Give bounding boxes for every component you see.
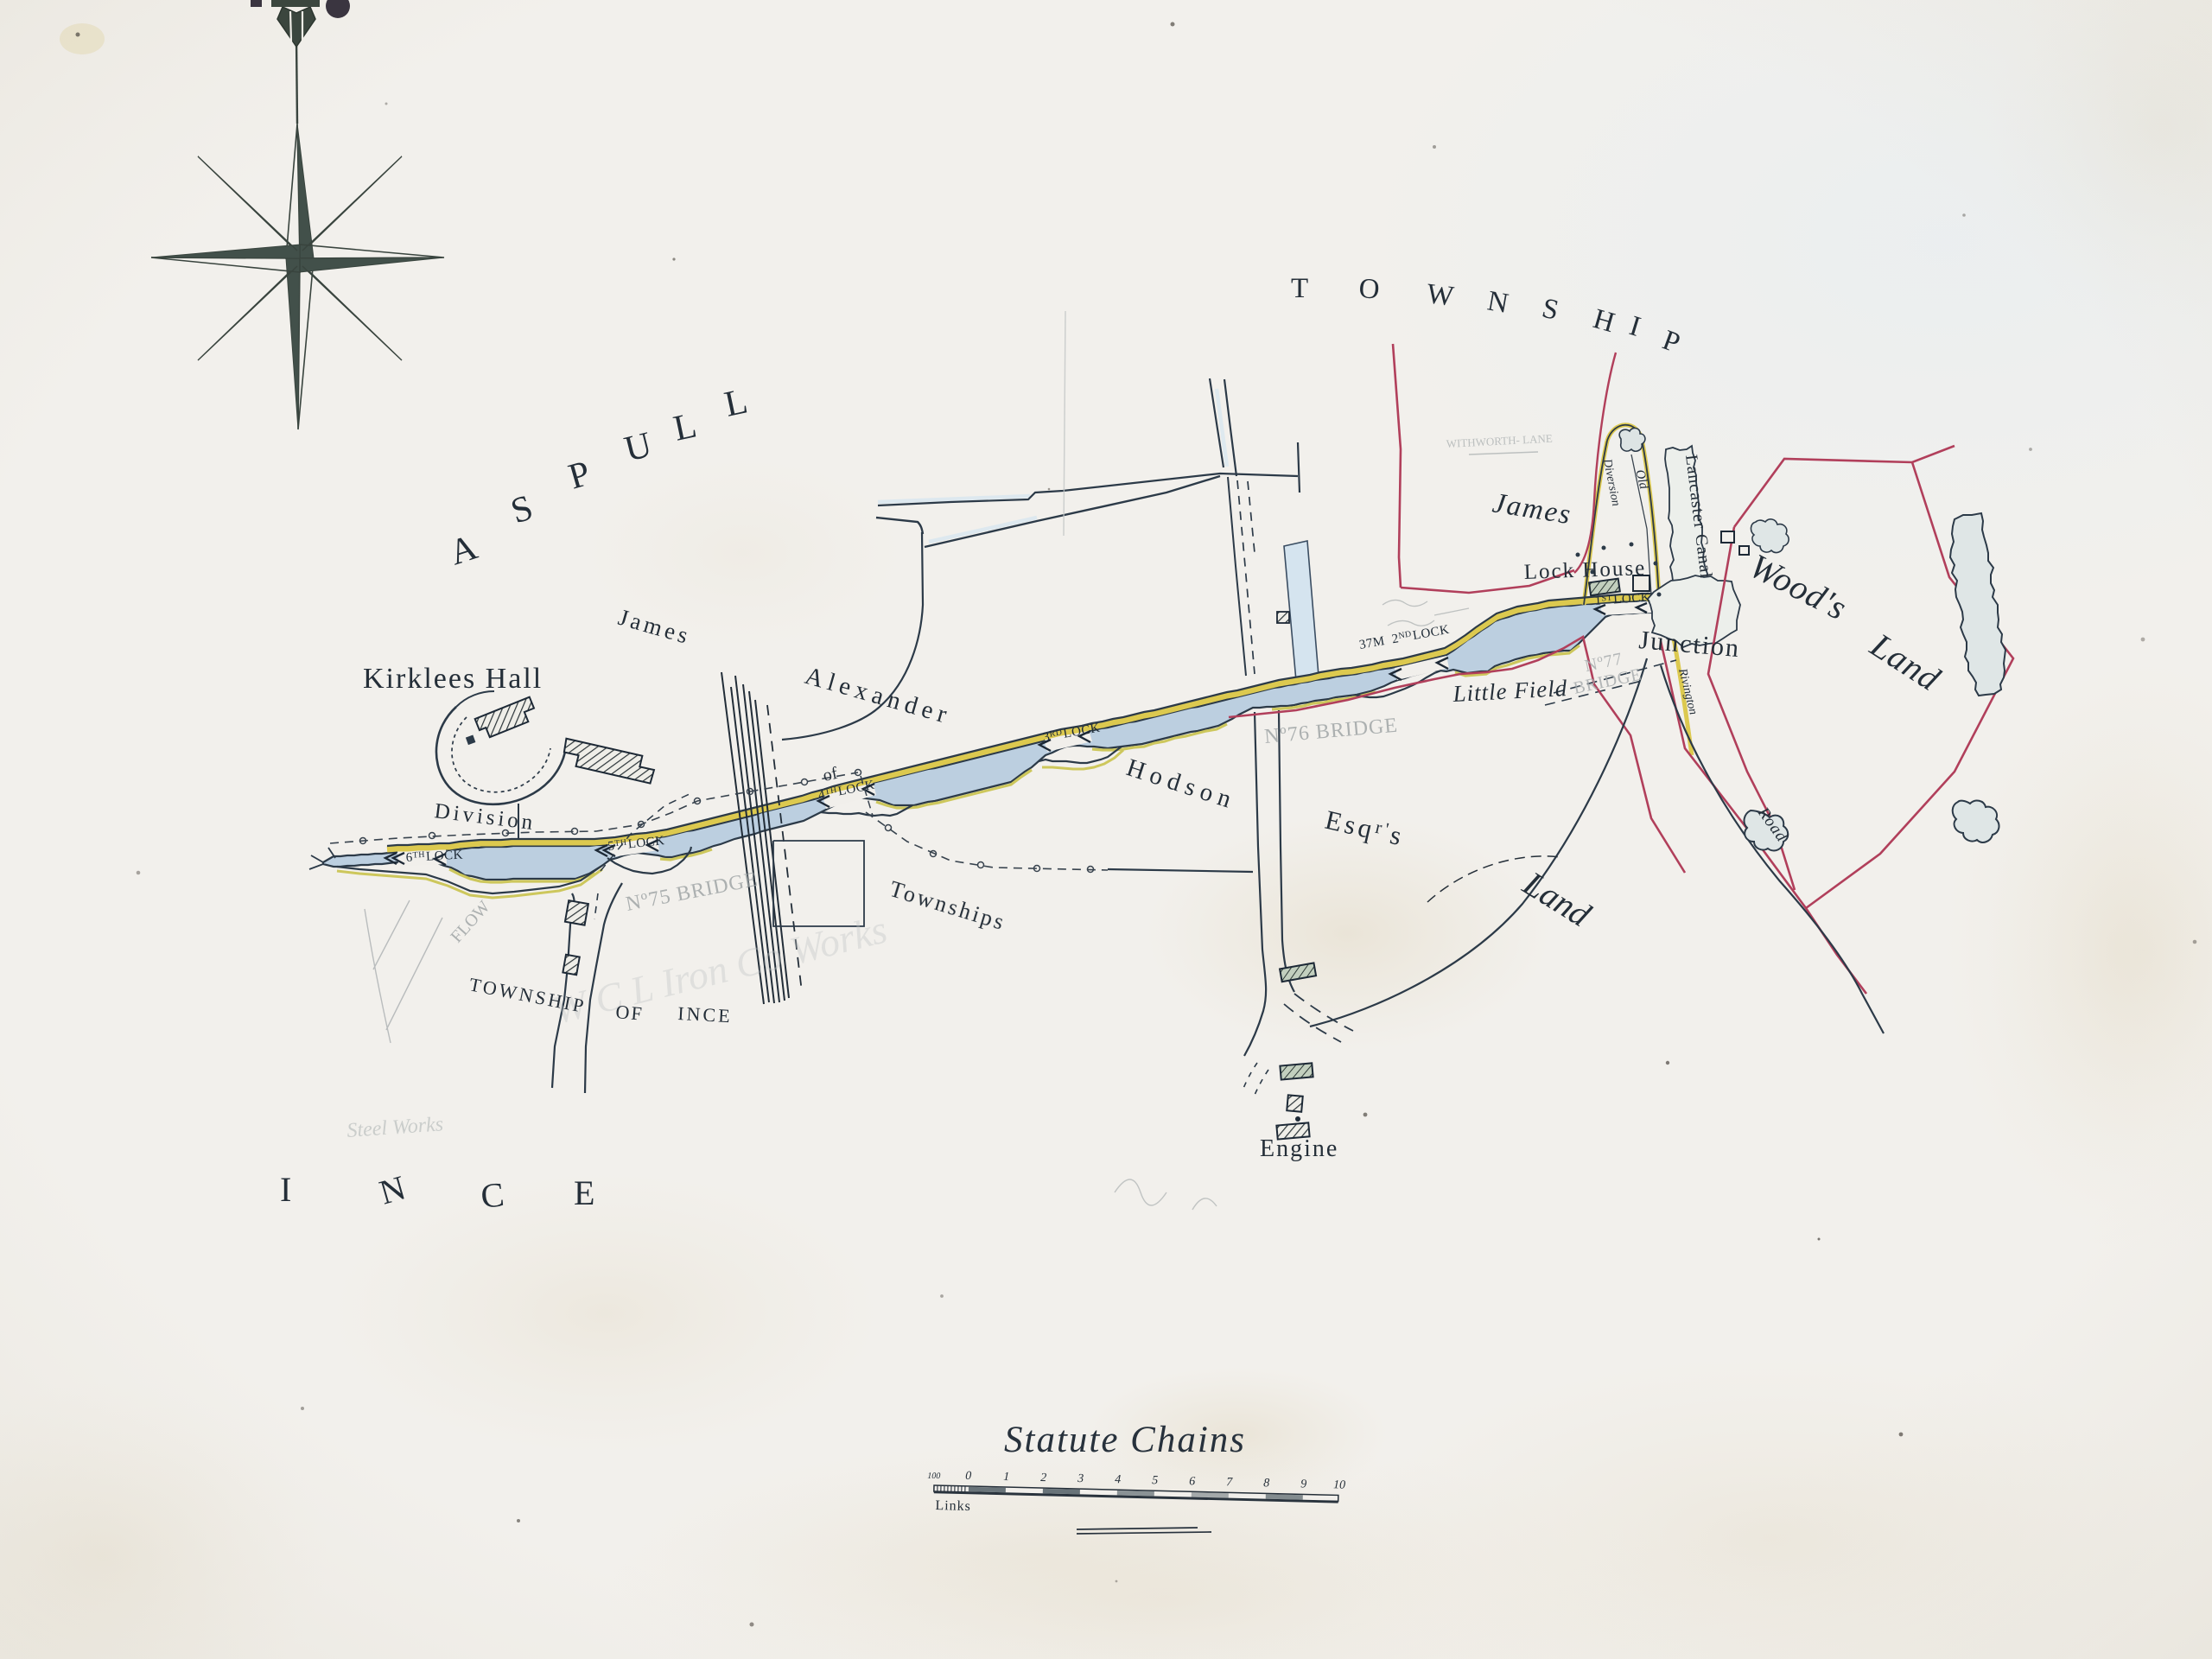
svg-text:10: 10: [1333, 1478, 1345, 1491]
svg-text:T: T: [1291, 273, 1308, 304]
svg-text:Engine: Engine: [1260, 1135, 1338, 1162]
svg-text:C: C: [479, 1174, 505, 1216]
svg-text:1: 1: [1003, 1471, 1009, 1484]
svg-text:8: 8: [1263, 1477, 1269, 1490]
svg-text:W: W: [1425, 278, 1456, 313]
svg-text:0: 0: [965, 1470, 971, 1483]
svg-text:6: 6: [1189, 1475, 1195, 1488]
svg-text:O: O: [1357, 273, 1380, 306]
svg-text:INCE: INCE: [677, 1002, 734, 1027]
svg-text:Links: Links: [935, 1498, 971, 1514]
svg-text:100: 100: [927, 1471, 940, 1481]
svg-text:Kirklees Hall: Kirklees Hall: [363, 663, 543, 695]
svg-text:OF: OF: [615, 1001, 645, 1025]
svg-text:5: 5: [1152, 1474, 1158, 1487]
svg-text:Statute Chains: Statute Chains: [1004, 1420, 1246, 1460]
svg-text:Lock House: Lock House: [1523, 556, 1646, 584]
svg-text:4: 4: [1115, 1473, 1121, 1486]
svg-text:9: 9: [1300, 1478, 1306, 1491]
svg-text:3: 3: [1077, 1472, 1084, 1485]
svg-text:E: E: [574, 1173, 594, 1212]
svg-text:I: I: [280, 1170, 291, 1209]
svg-text:2: 2: [1040, 1471, 1046, 1484]
